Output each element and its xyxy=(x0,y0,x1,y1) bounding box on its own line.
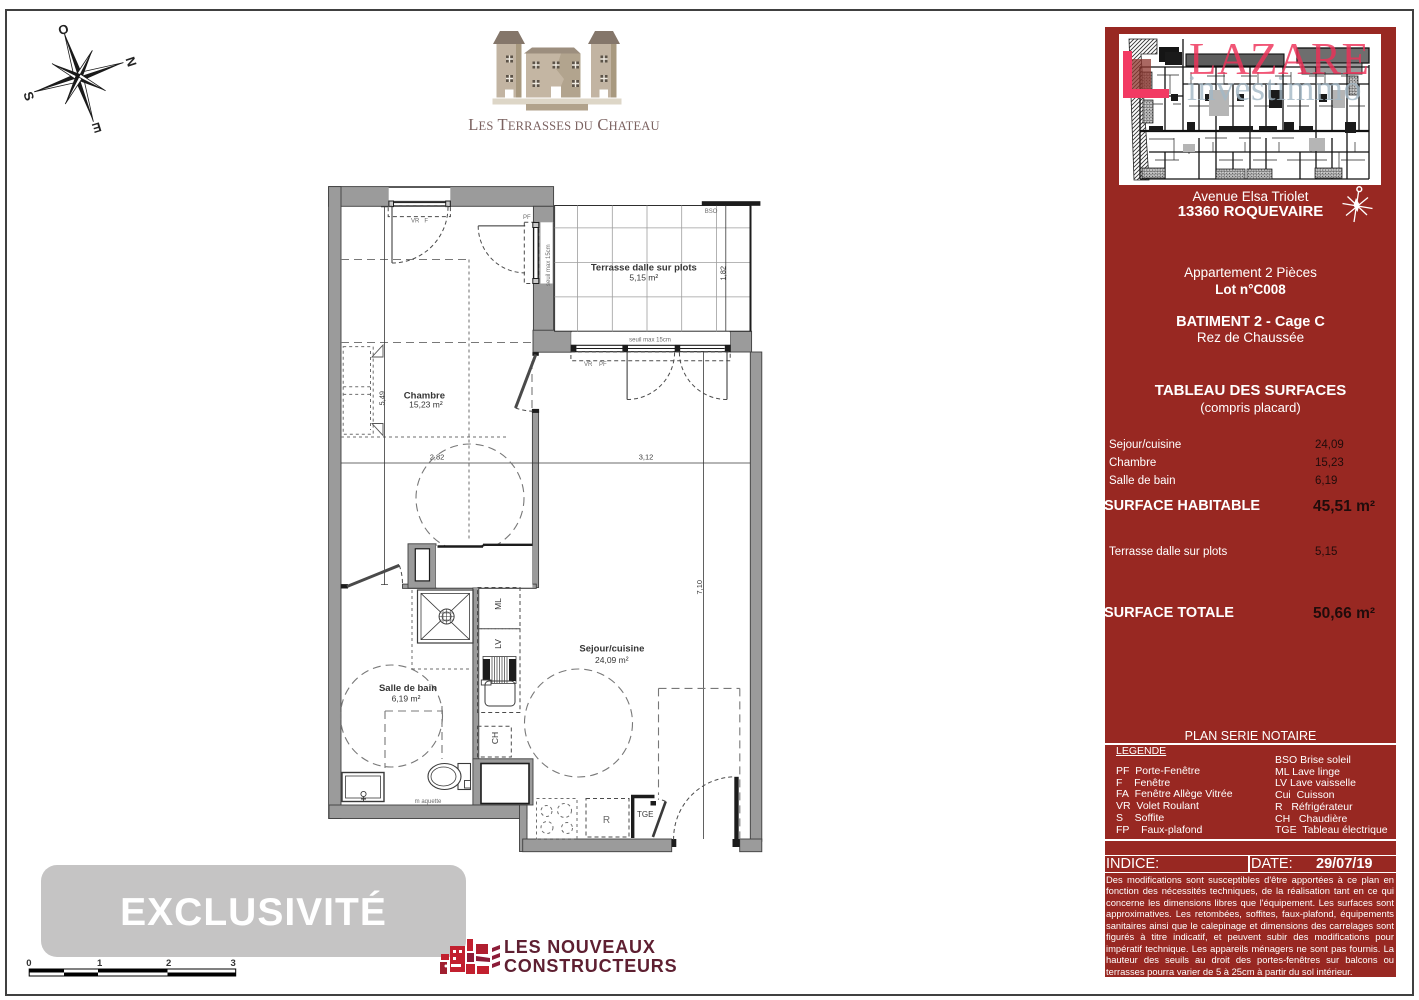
svg-text:5,49: 5,49 xyxy=(378,391,387,406)
svg-text:E: E xyxy=(90,119,103,136)
svg-text:Sejour/cuisine: Sejour/cuisine xyxy=(579,643,644,654)
svg-text:TGE: TGE xyxy=(637,810,653,819)
svg-text:investimmo: investimmo xyxy=(1187,68,1362,108)
svg-text:24,09 m²: 24,09 m² xyxy=(595,655,629,665)
svg-text:O: O xyxy=(56,21,70,38)
svg-text:Salle de bain: Salle de bain xyxy=(379,683,437,694)
svg-text:2: 2 xyxy=(166,958,171,969)
svg-text:5,15 m²: 5,15 m² xyxy=(629,272,658,282)
svg-text:7,10: 7,10 xyxy=(695,580,704,595)
svg-text:LES NOUVEAUX: LES NOUVEAUX xyxy=(504,937,656,957)
svg-text:3: 3 xyxy=(231,958,236,969)
svg-text:seuil max 15cm: seuil max 15cm xyxy=(546,244,552,286)
svg-text:ML: ML xyxy=(493,598,503,610)
svg-text:LES TERRASSES DU CHATEAU: LES TERRASSES DU CHATEAU xyxy=(468,115,660,134)
svg-text:S: S xyxy=(20,90,37,103)
svg-text:seuil max 15cm: seuil max 15cm xyxy=(629,338,671,344)
svg-text:LV: LV xyxy=(493,639,503,649)
svg-text:PF: PF xyxy=(523,215,531,221)
svg-text:R: R xyxy=(603,815,610,826)
svg-text:15,23 m²: 15,23 m² xyxy=(409,399,443,409)
svg-text:6,19 m²: 6,19 m² xyxy=(392,694,421,704)
svg-text:BSO: BSO xyxy=(705,209,718,215)
svg-text:N: N xyxy=(123,55,140,69)
svg-text:VR F: VR F xyxy=(411,219,428,225)
svg-text:CONSTRUCTEURS: CONSTRUCTEURS xyxy=(504,956,677,976)
svg-text:1: 1 xyxy=(97,958,103,969)
svg-text:m aquette: m aquette xyxy=(415,799,442,805)
svg-text:1,82: 1,82 xyxy=(719,266,728,281)
svg-text:0: 0 xyxy=(26,958,31,969)
svg-text:3,12: 3,12 xyxy=(639,453,654,462)
svg-text:VR PF: VR PF xyxy=(584,362,607,368)
svg-text:CH: CH xyxy=(490,732,500,744)
